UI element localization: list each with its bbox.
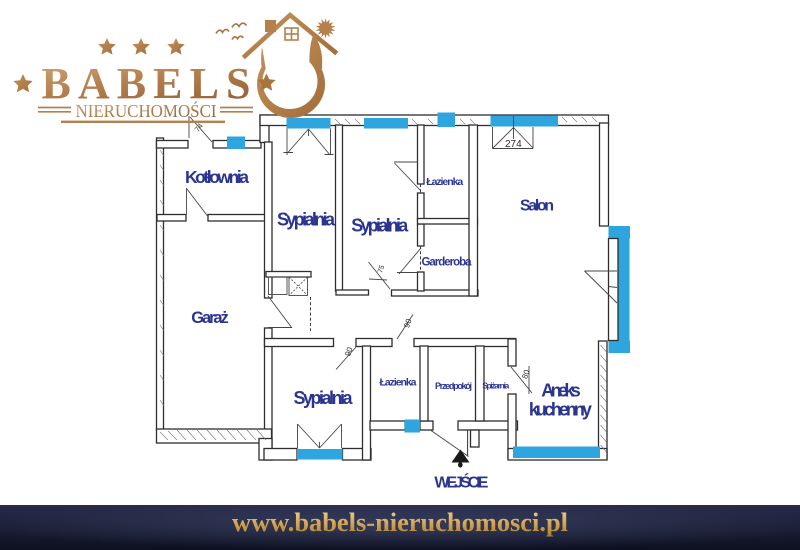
svg-text:WEJŚCIE: WEJŚCIE: [434, 473, 488, 492]
svg-text:Sypialnia: Sypialnia: [294, 388, 354, 408]
svg-text:75: 75: [377, 264, 386, 274]
svg-text:Garaż: Garaż: [191, 309, 229, 327]
svg-text:www.babels-nieruchomosci.pl: www.babels-nieruchomosci.pl: [232, 508, 568, 537]
svg-text:Sypialnia: Sypialnia: [277, 210, 336, 230]
svg-text:NIERUCHOMOŚCI: NIERUCHOMOŚCI: [76, 101, 217, 121]
svg-text:Przedpokój: Przedpokój: [435, 381, 472, 391]
svg-text:Sypialnia: Sypialnia: [351, 216, 409, 236]
svg-text:90: 90: [343, 345, 355, 357]
svg-text:Salon: Salon: [520, 198, 554, 215]
svg-text:80: 80: [520, 368, 532, 380]
svg-text:Aneks: Aneks: [541, 381, 581, 401]
svg-text:Spiżarnia: Spiżarnia: [482, 381, 509, 391]
svg-text:274: 274: [505, 139, 522, 150]
svg-text:Garderoba: Garderoba: [422, 256, 473, 268]
svg-text:90: 90: [402, 317, 414, 329]
svg-text:kuchenny: kuchenny: [529, 399, 592, 419]
svg-text:Łazienka: Łazienka: [426, 176, 463, 188]
svg-text:Kotłownia: Kotłownia: [185, 167, 249, 187]
svg-text:Łazienka: Łazienka: [380, 377, 417, 389]
